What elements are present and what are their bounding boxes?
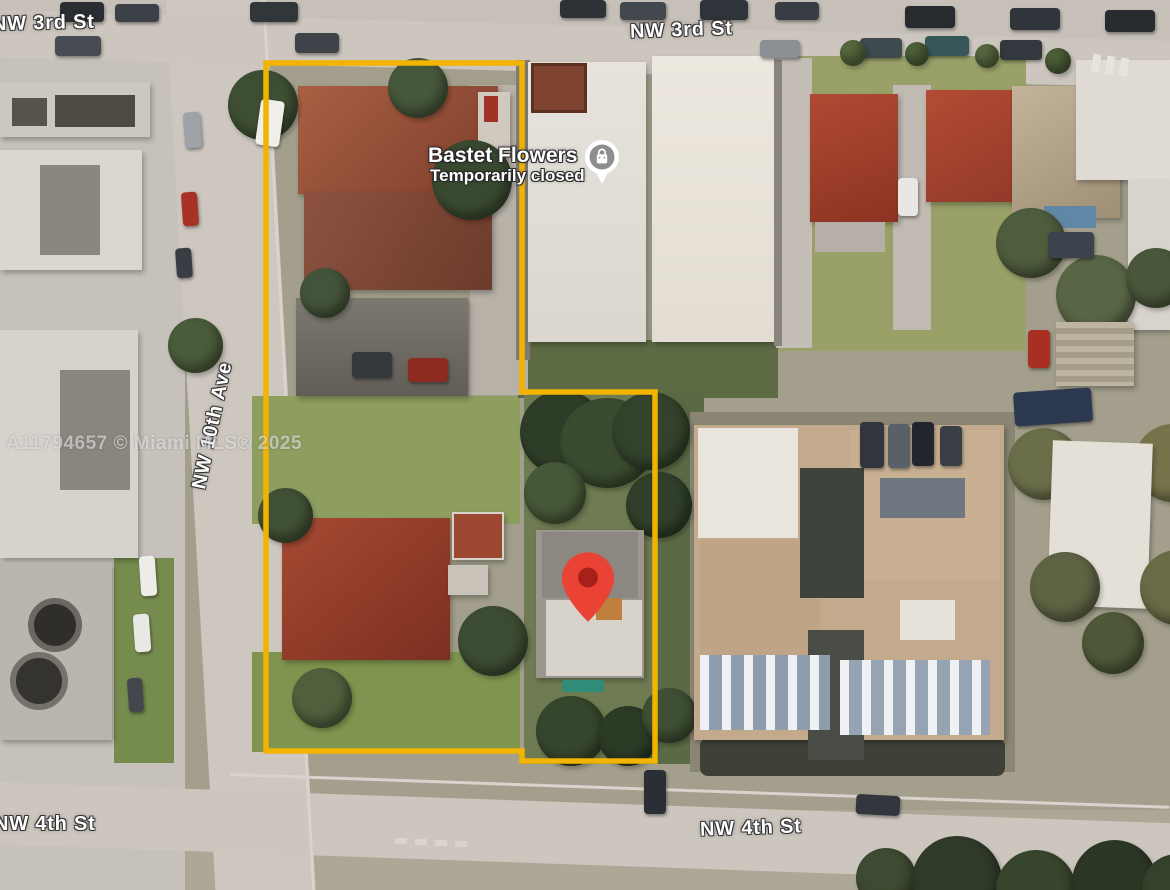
street-label-nw-4th-st-center: NW 4th St bbox=[700, 815, 802, 842]
street-label-nw-3rd-st-left: NW 3rd St bbox=[0, 11, 95, 37]
poi-status: Temporarily closed bbox=[430, 166, 585, 186]
poi-name[interactable]: Bastet Flowers bbox=[428, 144, 577, 168]
mls-watermark: A11794657 © Miami MLS® 2025 bbox=[6, 433, 302, 455]
street-label-nw-3rd-st-center: NW 3rd St bbox=[630, 17, 734, 44]
red-location-pin-icon[interactable] bbox=[562, 552, 614, 622]
street-label-nw-4th-st-left: NW 4th St bbox=[0, 813, 96, 836]
satellite-map[interactable]: NW 3rd St NW 3rd St NW 10th Ave NW 4th S… bbox=[0, 0, 1170, 890]
closed-place-pin-icon[interactable] bbox=[583, 138, 621, 188]
